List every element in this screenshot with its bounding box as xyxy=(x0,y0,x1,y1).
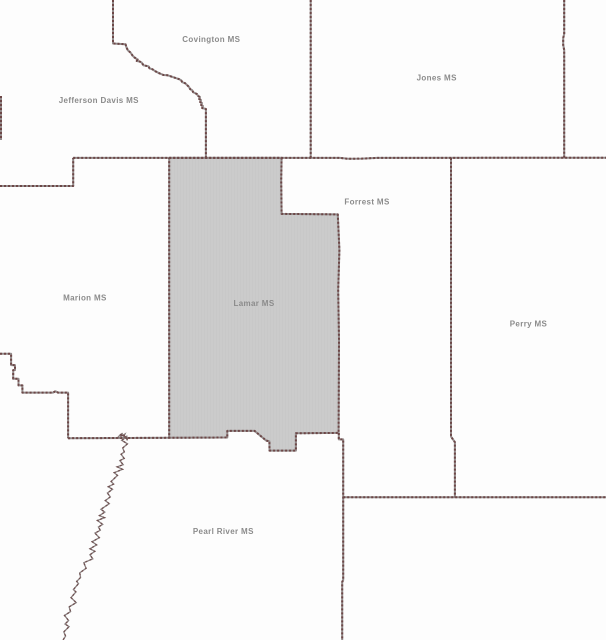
svg-text:Jones MS: Jones MS xyxy=(417,73,457,82)
svg-text:Jefferson Davis MS: Jefferson Davis MS xyxy=(59,96,139,105)
svg-text:Perry MS: Perry MS xyxy=(510,319,548,328)
svg-text:Marion MS: Marion MS xyxy=(63,294,107,303)
svg-text:Covington MS: Covington MS xyxy=(182,35,240,44)
svg-text:Pearl River MS: Pearl River MS xyxy=(193,527,254,536)
svg-text:Forrest MS: Forrest MS xyxy=(344,198,390,207)
svg-text:Lamar MS: Lamar MS xyxy=(233,299,274,308)
